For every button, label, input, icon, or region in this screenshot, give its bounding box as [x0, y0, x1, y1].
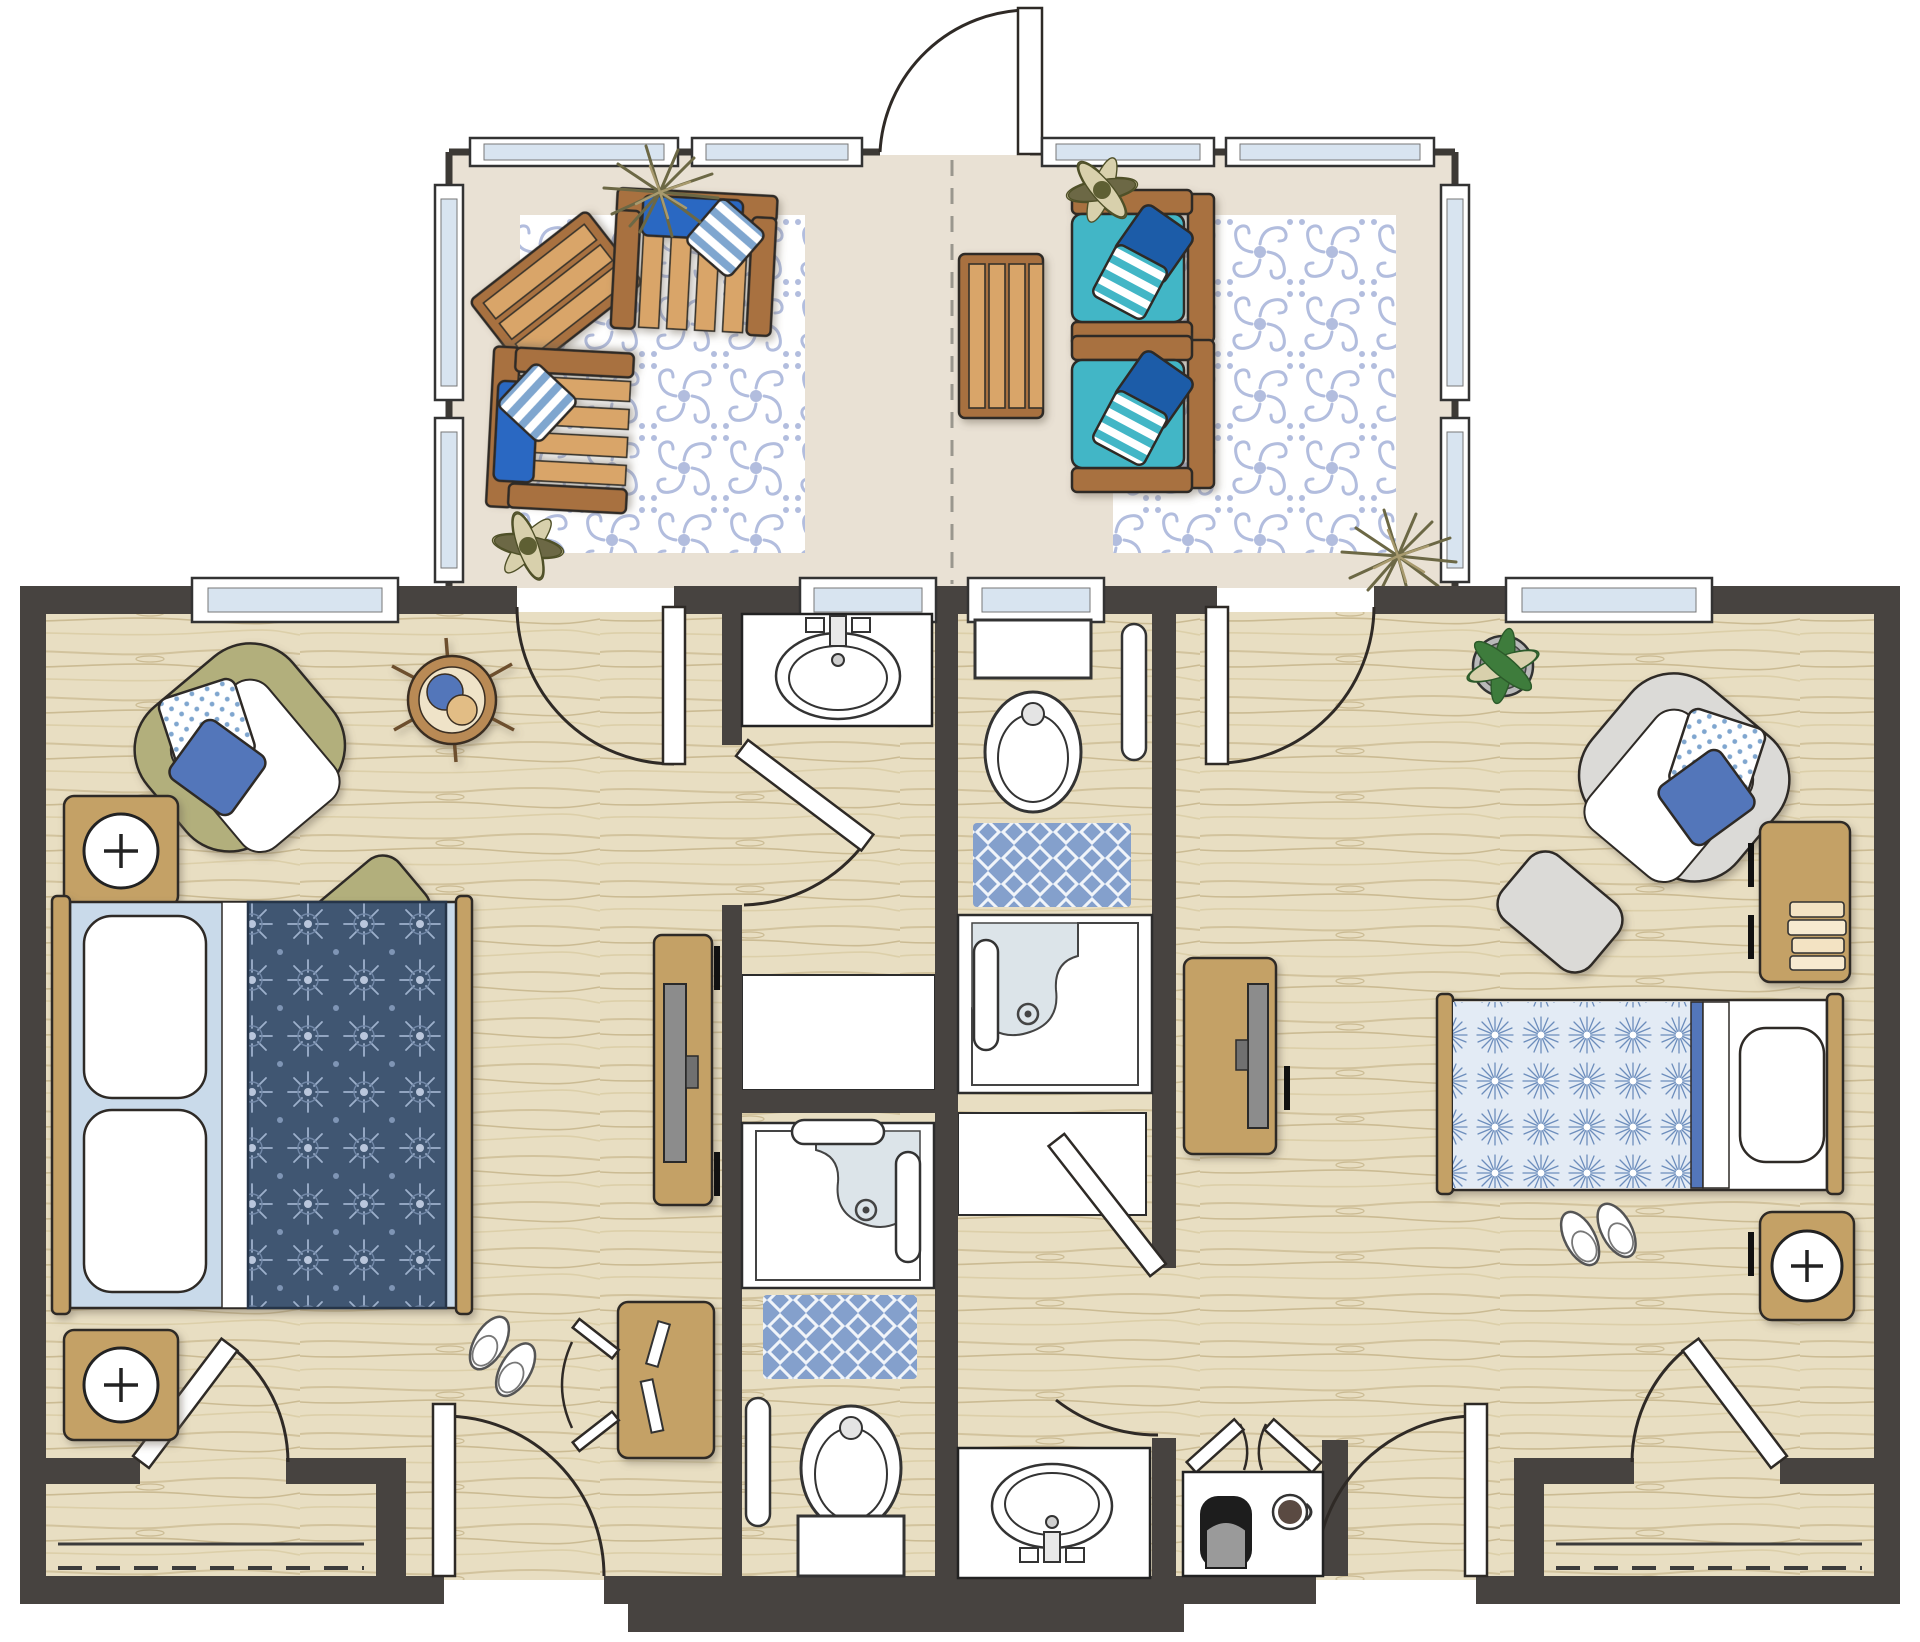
comforter [1453, 1002, 1691, 1188]
wall-mark [1748, 1232, 1754, 1276]
wall-mark [1748, 843, 1754, 887]
wall-mark [1748, 915, 1754, 959]
patio [435, 8, 1469, 600]
wall-mark [714, 946, 720, 990]
bath-mat [973, 823, 1131, 907]
single-bed [1437, 994, 1843, 1194]
towel-stack [1790, 902, 1844, 917]
comforter-band [1691, 1002, 1703, 1188]
headboard [1827, 994, 1843, 1194]
door-leaf [1018, 8, 1042, 154]
patio-entry-door [880, 8, 1042, 154]
grab-bar [1122, 624, 1146, 760]
comforter [248, 902, 446, 1308]
window [1441, 418, 1469, 582]
vanity [958, 1448, 1150, 1578]
linen-nook [958, 1113, 1146, 1215]
floor-plan-drawing [0, 0, 1920, 1642]
tv-console [1184, 958, 1276, 1154]
sheet-fold [1703, 1002, 1729, 1188]
desk [618, 1302, 714, 1458]
window [435, 185, 463, 400]
queen-bed [52, 896, 472, 1314]
door-leaf [433, 1404, 455, 1576]
patio-slat-table-right [959, 254, 1043, 418]
headboard [52, 896, 70, 1314]
window [692, 138, 862, 166]
bath-mat [763, 1295, 917, 1379]
door-leaf [663, 607, 685, 764]
grab-bar [746, 1398, 770, 1526]
shower [742, 1120, 934, 1288]
door-swing-arc [880, 10, 1030, 152]
shower-door-handle [974, 940, 998, 1050]
door-leaf [1465, 1404, 1487, 1576]
pillow [1740, 1028, 1824, 1162]
patio-teal-chair [1072, 336, 1214, 492]
shower-door-handle [792, 1120, 884, 1144]
faucet [830, 616, 846, 646]
wall-mark [1284, 1066, 1290, 1110]
nightstand [64, 796, 178, 906]
window [1506, 578, 1712, 622]
toilet-tank [798, 1516, 904, 1576]
tv-console [654, 935, 712, 1205]
window [192, 578, 398, 622]
linen-nook [742, 975, 935, 1090]
grab-bar [896, 1152, 920, 1262]
door-leaf [1206, 607, 1228, 764]
tv-icon [1248, 984, 1268, 1128]
window [968, 578, 1104, 622]
coffee-maker-icon [1200, 1496, 1252, 1568]
window [1042, 138, 1214, 166]
toilet [798, 1406, 904, 1576]
pillow [84, 916, 206, 1098]
floor-plan-stage [0, 0, 1920, 1642]
window [1226, 138, 1434, 166]
faucet [1044, 1532, 1060, 1562]
wall-mark [714, 1152, 720, 1196]
footboard [456, 896, 472, 1314]
footboard [1437, 994, 1453, 1194]
tv-icon [664, 984, 686, 1162]
window [1441, 185, 1469, 400]
toilet-tank [975, 620, 1091, 678]
pillow [84, 1110, 206, 1292]
nightstand [1760, 1212, 1854, 1320]
window [435, 418, 463, 582]
nightstand [64, 1330, 178, 1440]
shower [958, 915, 1152, 1093]
sheet-fold [222, 902, 248, 1308]
